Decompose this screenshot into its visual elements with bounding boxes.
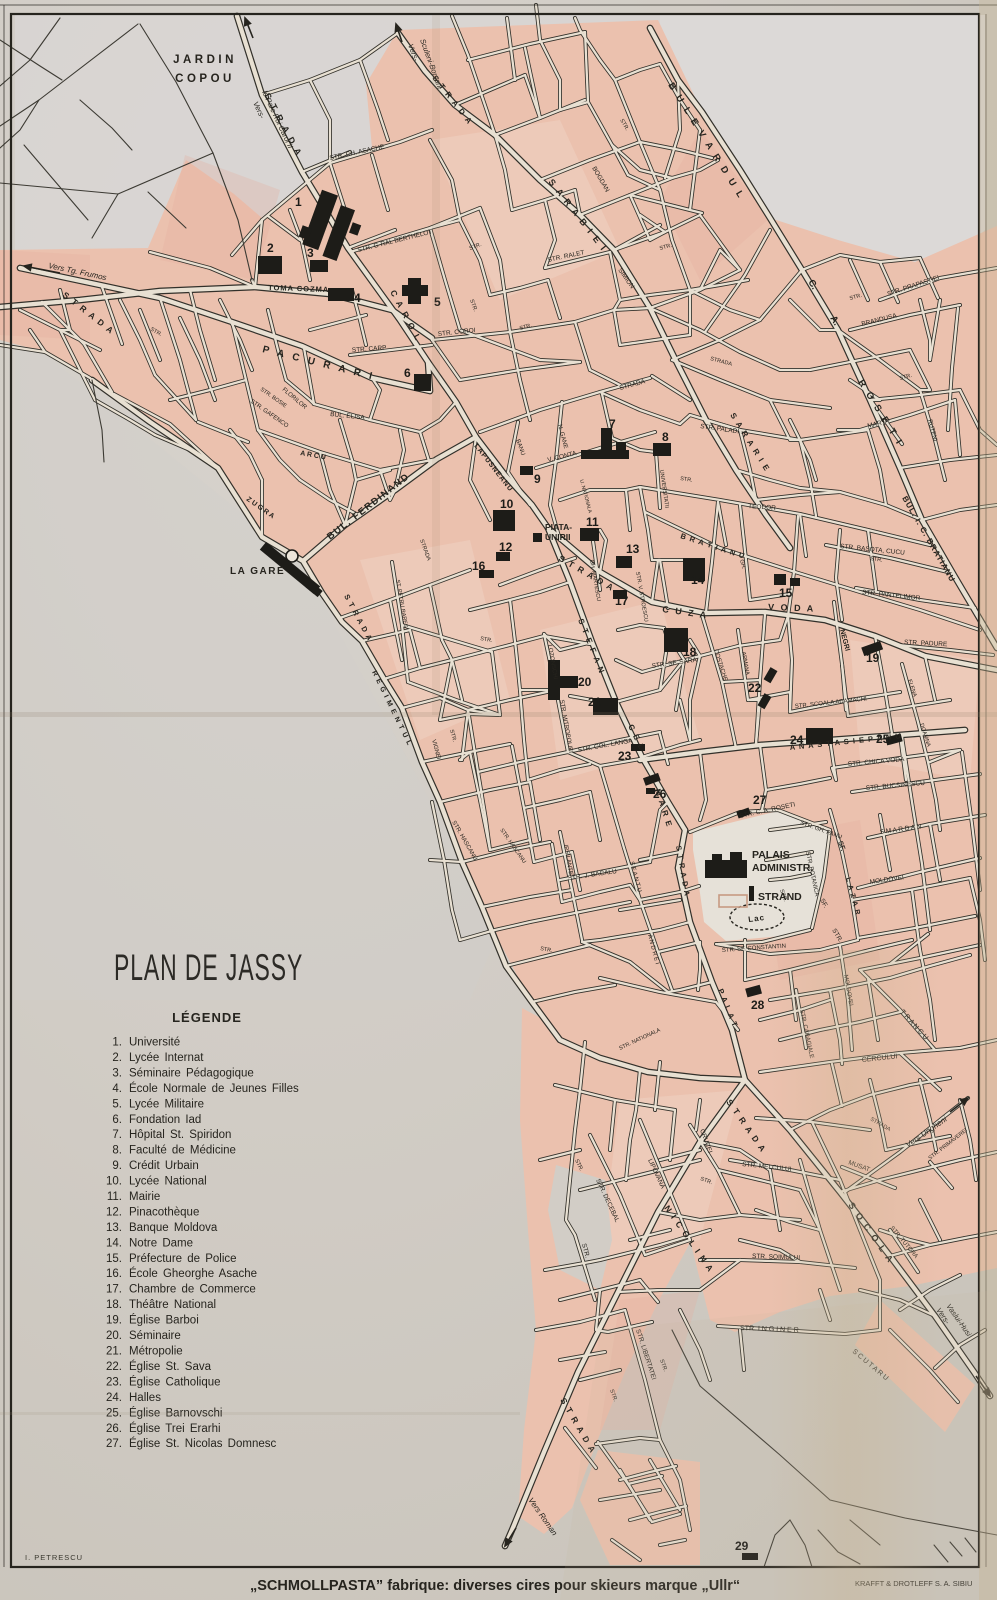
svg-text:LÉGENDE: LÉGENDE xyxy=(172,1010,242,1025)
svg-text:Lycée National: Lycée National xyxy=(129,1176,207,1188)
svg-text:Faculté de Médicine: Faculté de Médicine xyxy=(129,1145,236,1157)
svg-text:4: 4 xyxy=(354,291,361,305)
svg-text:Église Trei Erarhi: Église Trei Erarhi xyxy=(129,1422,221,1435)
svg-text:9.: 9. xyxy=(112,1160,122,1172)
svg-text:22.: 22. xyxy=(106,1361,122,1373)
svg-text:5.: 5. xyxy=(112,1098,122,1110)
svg-text:3: 3 xyxy=(307,246,314,260)
svg-text:1: 1 xyxy=(295,195,302,209)
svg-text:6: 6 xyxy=(404,366,411,380)
svg-text:23.: 23. xyxy=(106,1376,122,1388)
svg-text:Église St. Nicolas Domnesc: Église St. Nicolas Domnesc xyxy=(129,1437,276,1450)
svg-text:PLAN DE JASSY: PLAN DE JASSY xyxy=(114,946,303,988)
svg-text:2: 2 xyxy=(267,241,274,255)
svg-text:UNIRII: UNIRII xyxy=(545,532,571,542)
svg-text:10.: 10. xyxy=(106,1176,122,1188)
svg-text:15: 15 xyxy=(779,586,793,600)
svg-text:27: 27 xyxy=(753,793,767,807)
svg-text:Séminaire: Séminaire xyxy=(129,1330,181,1342)
svg-text:14.: 14. xyxy=(106,1237,122,1249)
svg-text:28: 28 xyxy=(751,998,765,1012)
svg-text:17: 17 xyxy=(615,594,629,608)
svg-text:24.: 24. xyxy=(106,1392,122,1404)
svg-text:17.: 17. xyxy=(106,1284,122,1296)
svg-text:26.: 26. xyxy=(106,1423,122,1435)
svg-text:22: 22 xyxy=(748,681,762,695)
svg-text:1.: 1. xyxy=(112,1037,122,1049)
svg-text:13: 13 xyxy=(626,542,640,556)
svg-text:Métropolie: Métropolie xyxy=(129,1346,183,1358)
svg-text:15.: 15. xyxy=(106,1253,122,1265)
svg-text:Église Catholique: Église Catholique xyxy=(129,1375,221,1388)
svg-text:Préfecture de Police: Préfecture de Police xyxy=(129,1253,237,1265)
svg-text:4.: 4. xyxy=(112,1083,122,1095)
svg-text:PIATA-: PIATA- xyxy=(545,522,572,532)
svg-text:10: 10 xyxy=(500,497,514,511)
svg-text:2.: 2. xyxy=(112,1052,122,1064)
svg-text:Séminaire Pédagogique: Séminaire Pédagogique xyxy=(129,1067,254,1079)
svg-text:I. PETRESCU: I. PETRESCU xyxy=(25,1553,83,1562)
svg-text:19: 19 xyxy=(866,651,880,665)
svg-text:Église St. Sava: Église St. Sava xyxy=(129,1360,212,1373)
svg-text:Pinacothèque: Pinacothèque xyxy=(129,1207,199,1219)
svg-text:8.: 8. xyxy=(112,1145,122,1157)
svg-text:12: 12 xyxy=(499,540,513,554)
svg-text:V O D A: V O D A xyxy=(768,602,815,614)
svg-text:27.: 27. xyxy=(106,1438,122,1450)
svg-text:Notre Dame: Notre Dame xyxy=(129,1237,193,1249)
svg-text:Université: Université xyxy=(129,1037,180,1049)
svg-text:PALAIS: PALAIS xyxy=(752,849,790,861)
svg-text:11.: 11. xyxy=(107,1191,122,1203)
svg-text:Lycée Internat: Lycée Internat xyxy=(129,1052,204,1064)
svg-text:11: 11 xyxy=(586,515,599,529)
svg-text:18.: 18. xyxy=(106,1299,122,1311)
svg-text:16.: 16. xyxy=(106,1268,122,1280)
svg-text:13.: 13. xyxy=(106,1222,122,1234)
svg-text:6.: 6. xyxy=(112,1114,122,1126)
svg-text:9: 9 xyxy=(534,472,541,486)
svg-text:7: 7 xyxy=(609,417,616,431)
svg-text:14: 14 xyxy=(691,573,705,587)
svg-text:Chambre de Commerce: Chambre de Commerce xyxy=(129,1284,256,1296)
svg-text:7.: 7. xyxy=(112,1129,122,1141)
svg-text:Hôpital St. Spiridon: Hôpital St. Spiridon xyxy=(129,1129,231,1141)
svg-text:Église Barboi: Église Barboi xyxy=(129,1314,199,1327)
svg-text:Halles: Halles xyxy=(129,1392,161,1404)
svg-text:Mairie: Mairie xyxy=(129,1191,160,1203)
svg-text:Banque Moldova: Banque Moldova xyxy=(129,1222,218,1234)
svg-text:3.: 3. xyxy=(112,1067,122,1079)
svg-text:8: 8 xyxy=(662,430,669,444)
svg-text:École Normale de Jeunes Filles: École Normale de Jeunes Filles xyxy=(129,1082,299,1095)
svg-text:École Gheorghe Asache: École Gheorghe Asache xyxy=(129,1267,257,1280)
svg-text:COPOU: COPOU xyxy=(175,73,235,85)
svg-text:20.: 20. xyxy=(106,1330,122,1342)
svg-text:JARDIN: JARDIN xyxy=(173,54,237,66)
svg-text:20: 20 xyxy=(578,675,592,689)
svg-text:ADMINISTR.: ADMINISTR. xyxy=(752,862,813,874)
svg-text:23: 23 xyxy=(618,749,632,763)
svg-text:19.: 19. xyxy=(106,1315,122,1327)
svg-text:21.: 21. xyxy=(106,1346,122,1358)
svg-text:Théâtre National: Théâtre National xyxy=(129,1299,216,1311)
svg-text:LA GARE: LA GARE xyxy=(230,566,285,577)
svg-text:21: 21 xyxy=(588,695,602,709)
svg-text:Lycée Militaire: Lycée Militaire xyxy=(129,1098,204,1110)
svg-text:16: 16 xyxy=(472,559,486,573)
svg-text:12.: 12. xyxy=(106,1207,122,1219)
svg-text:Crédit Urbain: Crédit Urbain xyxy=(129,1160,199,1172)
svg-text:Fondation Iad: Fondation Iad xyxy=(129,1114,201,1126)
